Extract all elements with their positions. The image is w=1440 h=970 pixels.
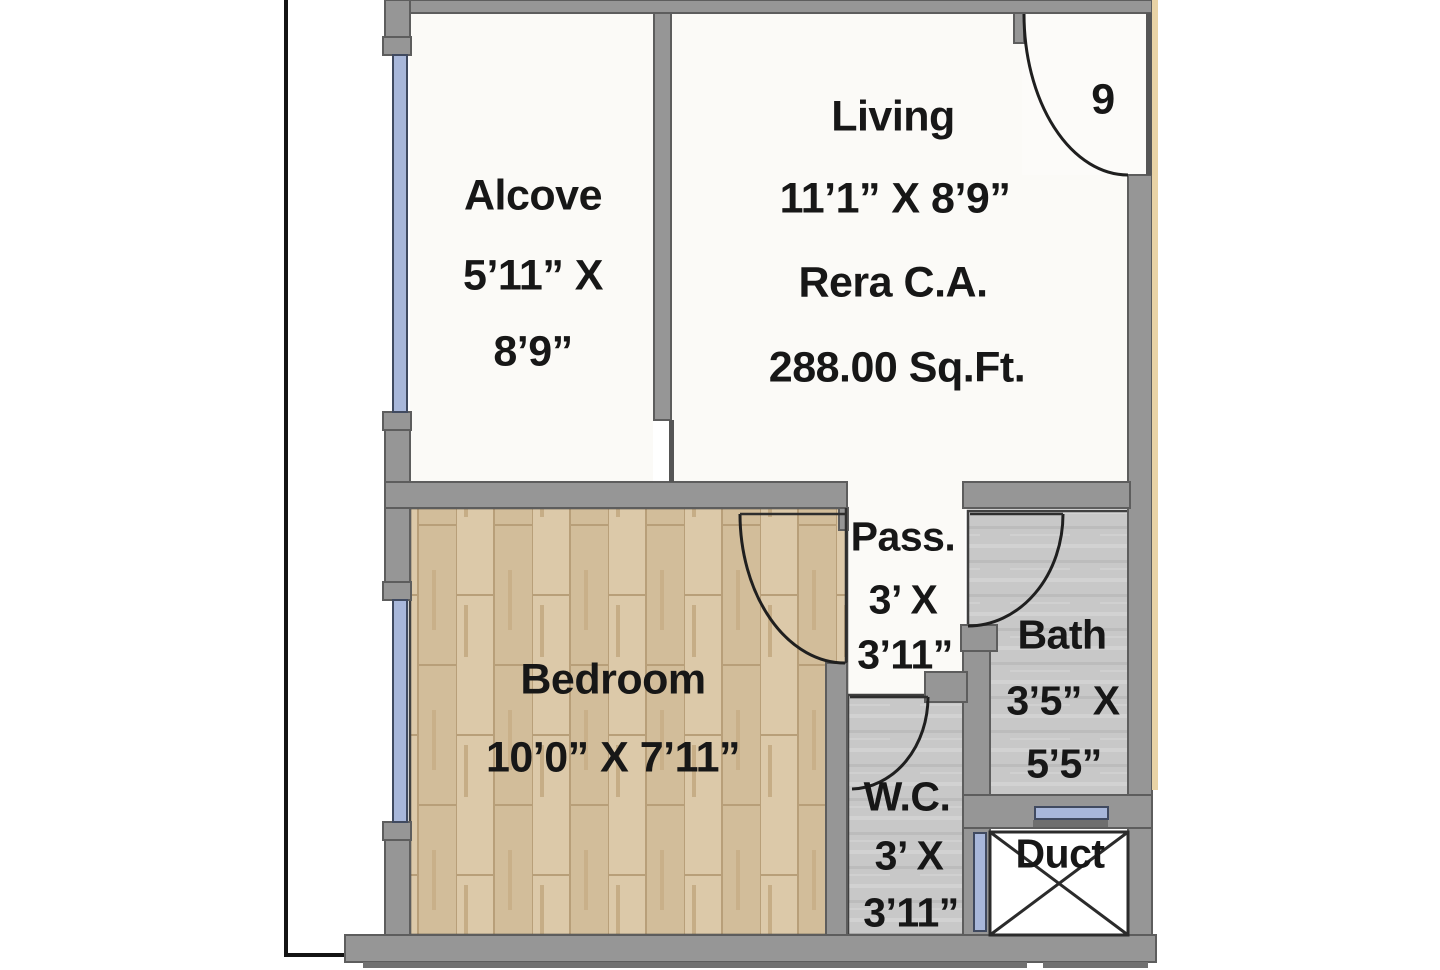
- adjacent-accent-strip: [1152, 0, 1158, 790]
- window-cap: [383, 822, 411, 840]
- window-cap: [383, 412, 411, 430]
- window-cap: [383, 582, 411, 600]
- alcove-dim1: 5’11” X: [463, 255, 603, 298]
- duct-window: [974, 833, 986, 931]
- bath-door-stub: [961, 625, 997, 651]
- bath-window-sill: [1033, 820, 1108, 827]
- living-rera-label: Rera C.A.: [798, 262, 987, 305]
- passage-label: Pass.: [851, 517, 956, 558]
- wc-label: W.C.: [864, 777, 951, 818]
- niche-right-edge: [1146, 13, 1152, 175]
- bedroom-window: [393, 600, 407, 822]
- bedroom-living-wall: [385, 482, 847, 508]
- lower-unit-wall-segment: [1043, 962, 1148, 968]
- bedroom-passage-wall: [826, 663, 847, 935]
- open-space-left-line: [284, 0, 288, 957]
- living-dim: 11’1” X 8’9”: [780, 178, 1011, 221]
- flat-number: 9: [1091, 79, 1114, 122]
- bath-label: Bath: [1017, 615, 1106, 656]
- lower-unit-wall-segment: [363, 962, 1027, 968]
- living-area-label: 288.00 Sq.Ft.: [769, 347, 1025, 390]
- alcove-living-partition: [654, 13, 671, 420]
- alcove-label: Alcove: [464, 175, 602, 218]
- duct-label: Duct: [1015, 834, 1104, 875]
- right-wall: [1128, 175, 1152, 962]
- alcove-window: [393, 55, 407, 412]
- bath-dim2: 5’5”: [1026, 744, 1102, 785]
- bath-window: [1035, 807, 1108, 819]
- floor-plan-drawing: [0, 0, 1440, 970]
- floor-plan: Alcove 5’11” X 8’9” Living 11’1” X 8’9” …: [0, 0, 1440, 970]
- bath-dim1: 3’5” X: [1006, 681, 1119, 722]
- passage-dim2: 3’11”: [857, 635, 953, 676]
- wc-dim2: 3’11”: [863, 893, 959, 934]
- wc-dim1: 3’ X: [875, 836, 944, 877]
- alcove-dim2: 8’9”: [493, 331, 572, 374]
- passage-dim1: 3’ X: [869, 580, 938, 621]
- partition-lower-edge: [669, 420, 674, 482]
- living-label: Living: [831, 96, 955, 139]
- top-wall: [385, 0, 1152, 13]
- entrance-jamb: [1014, 13, 1024, 43]
- window-cap: [383, 37, 411, 55]
- living-bath-wall: [963, 482, 1130, 508]
- bedroom-dim: 10’0” X 7’11”: [486, 737, 740, 780]
- bottom-wall: [345, 935, 1156, 962]
- entrance-niche-floor: [1022, 13, 1146, 175]
- alcove-floor: [410, 13, 653, 482]
- bedroom-label: Bedroom: [520, 659, 705, 702]
- bedroom-floor: [410, 508, 847, 935]
